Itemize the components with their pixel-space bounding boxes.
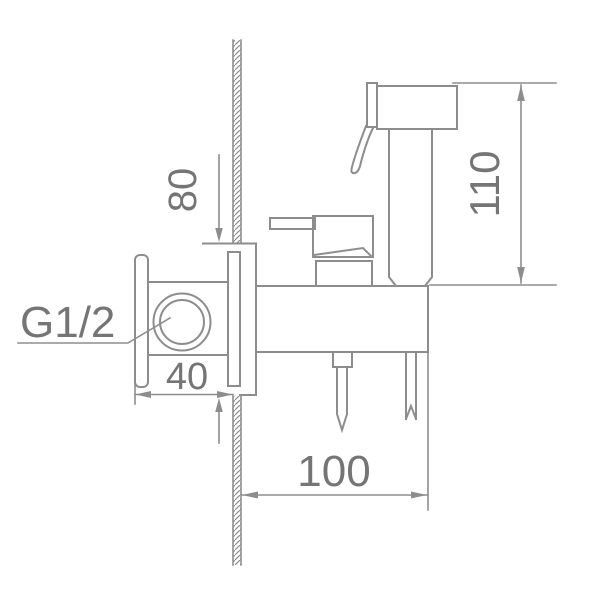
dimension-80	[215, 155, 223, 443]
dim-80-arrow-up	[215, 398, 223, 412]
wall-escutcheon-plate	[228, 252, 240, 386]
spout-nozzle	[333, 352, 352, 430]
dim-40-label: 40	[166, 356, 208, 398]
inlet-port-inner-circle	[160, 300, 204, 344]
bidet-mixer-technical-drawing: G1/2 80 110 40 100	[0, 0, 600, 600]
dim-80-label: 80	[161, 168, 205, 213]
wall-hatch-bottom	[233, 396, 241, 565]
handle-tilt-line	[314, 248, 371, 256]
cartridge-base	[316, 261, 372, 286]
object-lines	[135, 40, 457, 565]
flange-front-bar	[135, 255, 148, 387]
sprayer-trigger	[351, 126, 373, 173]
dimension-lines	[18, 83, 556, 510]
mixer-handle	[270, 216, 373, 286]
valve-body	[256, 286, 428, 352]
dim-100-label: 100	[297, 447, 370, 496]
sprayer-nozzle-plate	[367, 83, 377, 127]
dim-100-arrow-right	[411, 492, 427, 499]
dim-40-arrow-right	[217, 391, 233, 398]
hand-sprayer	[351, 83, 457, 286]
sprayer-holder-tube	[389, 129, 432, 286]
dim-40-arrow-left	[135, 391, 151, 398]
labels: G1/2 80 110 40 100	[20, 151, 508, 496]
nozzle-tip	[337, 367, 347, 430]
hose-break-symbol	[406, 352, 416, 419]
dim-110-arrow-up	[517, 85, 525, 101]
wall-hatch-top	[233, 40, 241, 243]
sprayer-head	[377, 86, 457, 129]
dim-110-label: 110	[461, 151, 508, 218]
dim-100-arrow-left	[242, 492, 258, 499]
valve-body-box	[256, 286, 428, 352]
drawing-canvas: G1/2 80 110 40 100	[0, 0, 600, 600]
handle-lever-bar	[270, 218, 315, 229]
thread-size-label: G1/2	[20, 298, 115, 347]
hose	[406, 352, 416, 419]
nozzle-collar	[333, 352, 352, 367]
dim-80-arrow-down	[215, 228, 223, 242]
dim-110-arrow-down	[517, 267, 525, 283]
